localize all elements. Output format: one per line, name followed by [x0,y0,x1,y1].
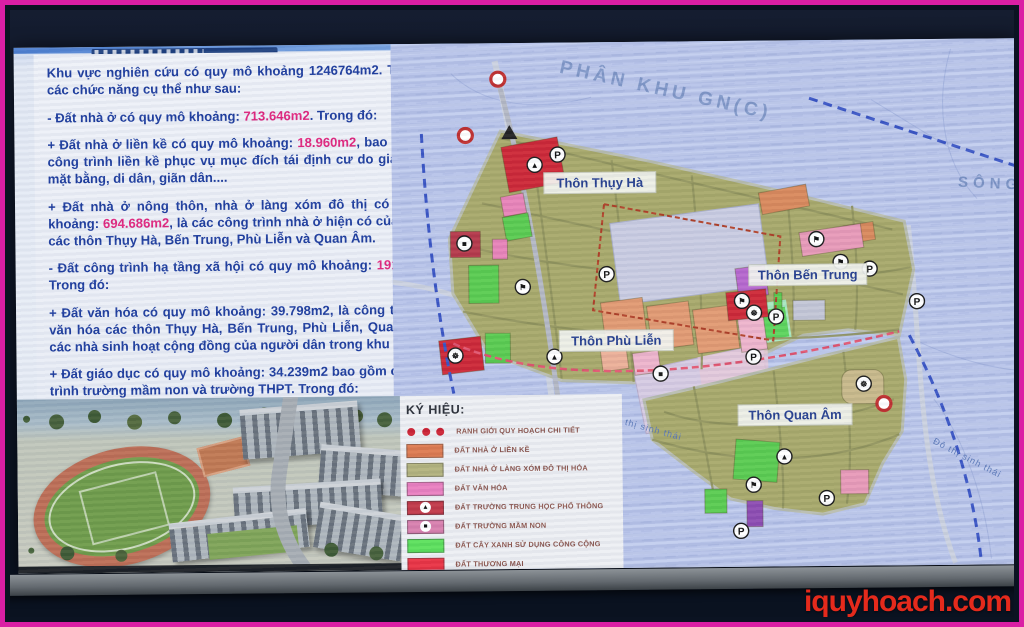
village-label-thuy-ha: Thôn Thụy Hà [544,172,656,194]
legend-item: ĐẤT NHÀ Ở LIỀN KỀ [406,439,614,460]
legend-item: ▲ĐẤT TRƯỜNG TRUNG HỌC PHỔ THÔNG [407,496,615,517]
legend-item: RANH GIỚI QUY HOẠCH CHI TIẾT [406,420,614,441]
svg-text:P: P [603,270,610,281]
legend-item: ■ĐẤT TRƯỜNG MẦM NON [407,515,615,536]
legend-items: RANH GIỚI QUY HOẠCH CHI TIẾTĐẤT NHÀ Ở LI… [406,420,615,570]
triangle-icon: ▲ [420,502,431,513]
legend-panel: KÝ HIỆU: RANH GIỚI QUY HOẠCH CHI TIẾTĐẤT… [394,394,624,570]
svg-text:▲: ▲ [550,353,558,362]
kindergarten-icon: ■ [653,366,668,381]
svg-text:☸: ☸ [750,309,757,318]
legend-swatch [406,427,445,435]
legend-swatch [407,481,444,495]
svg-text:▲: ▲ [780,452,788,461]
svg-text:⚑: ⚑ [750,481,757,490]
culture-icon: ⚑ [515,279,530,294]
svg-text:Thôn Bến Trung: Thôn Bến Trung [758,267,858,283]
community-icon: ☸ [448,348,463,363]
legend-label: ĐẤT CÂY XANH SỬ DỤNG CÔNG CỘNG [455,539,600,549]
culture-icon: ⚑ [746,477,761,492]
parking-icon: P [819,490,834,505]
legend-swatch [406,462,443,476]
parking-icon: P [769,309,784,324]
presentation-slide: Khu vực nghiên cứu có quy mô khoảng 1246… [13,38,1014,574]
paragraph: - Đất nhà ở có quy mô khoảng: 713.646m2.… [47,105,445,126]
area-value: 18.960m2 [297,135,356,151]
legend-title: KÝ HIỆU: [406,401,614,417]
text-segment: + Đất văn hóa có quy mô khoảng: 39.798m2… [49,301,447,354]
parking-icon: P [734,523,749,538]
legend-label: ĐẤT VĂN HÓA [455,483,508,493]
community-icon: ☸ [856,376,871,391]
svg-text:P: P [750,352,757,363]
legend-item: ĐẤT NHÀ Ở LÀNG XÓM ĐÔ THỊ HÓA [406,458,614,479]
paragraph: + Đất nhà ở liền kề có quy mô khoảng: 18… [47,133,445,188]
highschool-icon: ▲ [527,157,542,172]
river-label: SÔNG [958,173,1014,194]
parking-icon: P [599,267,614,282]
svg-text:P: P [738,527,745,538]
monitor-photo: Khu vực nghiên cứu có quy mô khoảng 1246… [10,10,1014,617]
svg-text:P: P [866,264,873,275]
area-value: 694.686m2 [103,215,169,231]
paragraph: Khu vực nghiên cứu có quy mô khoảng 1246… [47,61,445,99]
svg-text:☸: ☸ [860,380,867,389]
svg-text:Thôn Thụy Hà: Thôn Thụy Hà [556,175,644,191]
kindergarten-icon: ■ [457,236,472,251]
svg-text:■: ■ [658,370,663,379]
tree-row-icon [23,416,30,423]
legend-swatch: ■ [407,519,444,533]
legend-label: ĐẤT NHÀ Ở LÀNG XÓM ĐÔ THỊ HÓA [455,463,588,473]
paragraph: - Đất công trình hạ tầng xã hội có quy m… [49,256,447,294]
legend-label: ĐẤT TRƯỜNG MẦM NON [455,521,546,531]
svg-text:■: ■ [462,239,467,248]
text-segment: - Đất nhà ở có quy mô khoảng: [47,108,243,125]
legend-label: ĐẤT NHÀ Ở LIỀN KỀ [454,445,529,455]
legend-swatch [407,538,444,552]
text-segment: Khu vực nghiên cứu có quy mô khoảng 1246… [47,62,445,98]
tree-row-icon [28,548,34,554]
parking-icon: P [550,147,565,162]
paragraph: + Đất giáo dục có quy mô khoảng: 34.239m… [50,362,448,400]
planning-map: PPPPPPPP▲▲▲■■⚑⚑⚑⚑⚑☸☸☸ Thôn Thụy Hà Thôn … [390,38,1014,570]
culture-icon: ⚑ [734,293,749,308]
svg-text:☸: ☸ [452,352,459,361]
legend-item: ĐẤT THƯƠNG MẠI [407,553,615,570]
parking-icon: P [746,349,761,364]
school-rendering [17,396,402,574]
village-label-phu-lien: Thôn Phù Liễn [559,330,673,352]
culture-icon: ⚑ [809,232,824,247]
svg-text:⚑: ⚑ [519,283,526,292]
svg-text:▲: ▲ [531,161,539,170]
legend-label: RANH GIỚI QUY HOẠCH CHI TIẾT [456,425,580,435]
text-segment: . Trong đó: [310,107,378,123]
svg-text:⚑: ⚑ [738,297,745,306]
legend-swatch: ▲ [407,500,444,514]
legend-item: ĐẤT VĂN HÓA [407,477,615,498]
svg-text:P: P [823,494,830,505]
village-label-ben-trung: Thôn Bến Trung [749,264,867,286]
legend-label: ĐẤT TRƯỜNG TRUNG HỌC PHỔ THÔNG [455,501,603,511]
svg-text:P: P [914,297,921,308]
svg-text:P: P [773,312,780,323]
legend-item: ĐẤT CÂY XANH SỬ DỤNG CÔNG CỘNG [407,534,615,555]
svg-text:P: P [554,150,561,161]
text-segment: - Đất công trình hạ tầng xã hội có quy m… [49,257,377,275]
photo-frame: Khu vực nghiên cứu có quy mô khoảng 1246… [0,0,1024,627]
svg-text:⚑: ⚑ [813,235,820,244]
community-icon: ☸ [747,305,762,320]
paragraph: + Đất văn hóa có quy mô khoảng: 39.798m2… [49,300,447,355]
highschool-icon: ▲ [777,449,792,464]
area-value: 713.646m2 [243,108,309,124]
legend-label: ĐẤT THƯƠNG MẠI [455,559,523,569]
svg-text:Thôn Phù Liễn: Thôn Phù Liễn [571,333,661,349]
paragraph: + Đất nhà ở nông thôn, nhà ở làng xóm đô… [48,194,446,249]
square-icon: ■ [420,521,431,532]
svg-text:Thôn Quan Âm: Thôn Quan Âm [748,407,841,423]
watermark-text: iquyhoach.com [804,585,1011,617]
text-segment: + Đất giáo dục có quy mô khoảng: 34.239m… [50,363,448,399]
legend-swatch [406,443,443,457]
village-label-quan-am: Thôn Quan Âm [738,404,852,426]
text-segment: + Đất nhà ở liền kề có quy mô khoảng: [47,135,297,152]
legend-swatch [407,557,444,570]
parking-icon: P [909,294,924,309]
